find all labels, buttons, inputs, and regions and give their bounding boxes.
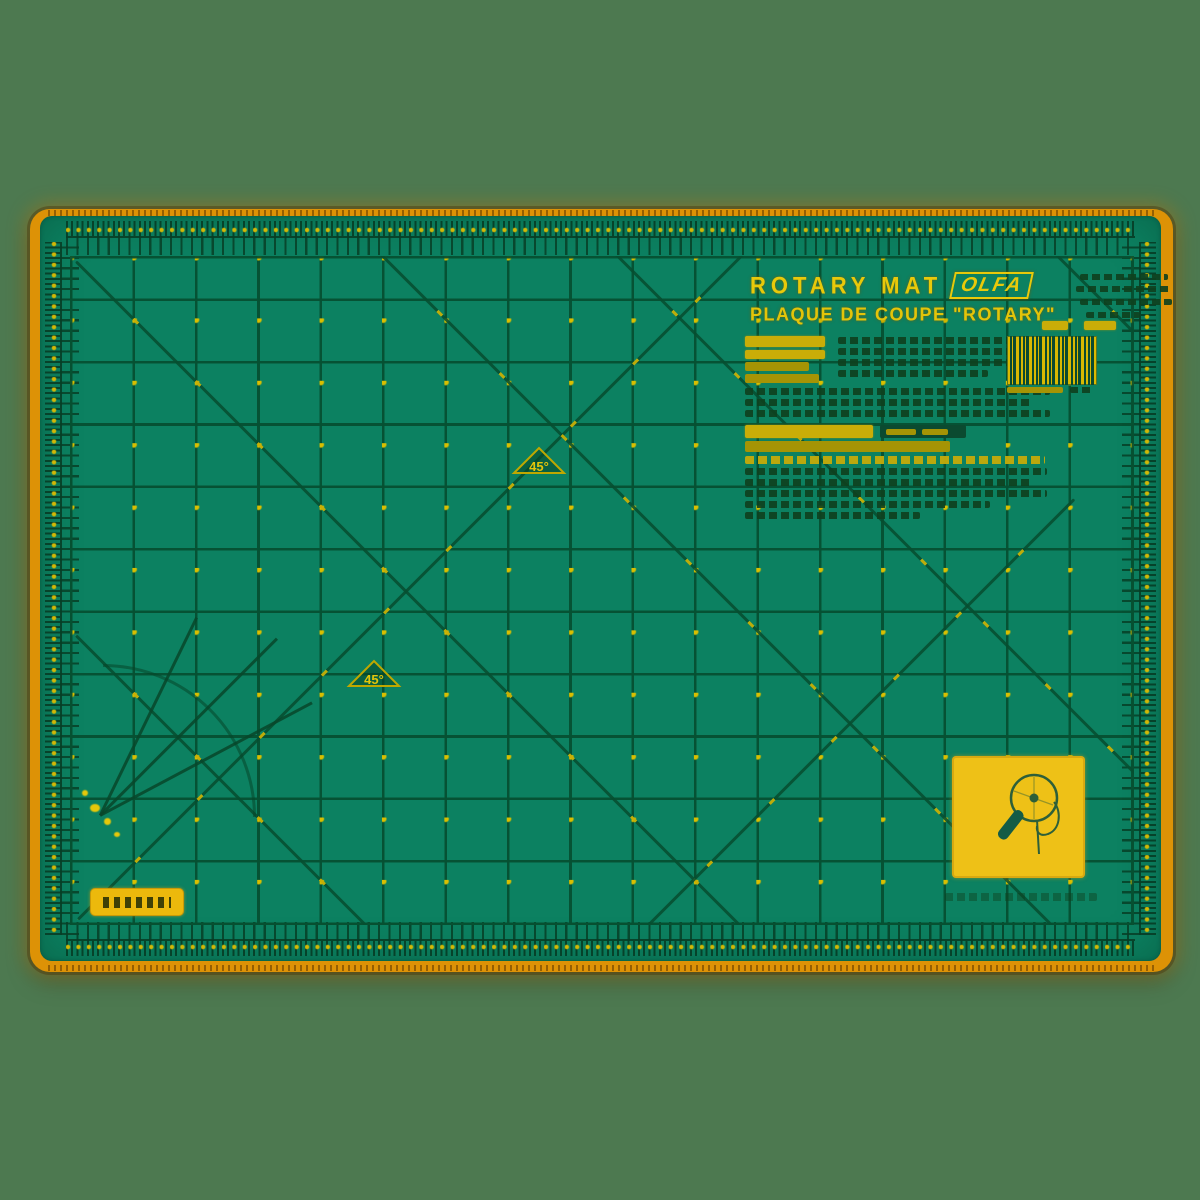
product-photo-background: 45° 45° ROTARY MAT OLFA PLAQUE DE COUPE …: [0, 0, 1200, 1200]
embossed-text: [945, 893, 1097, 901]
illegible-text-line: [1070, 387, 1094, 393]
olfa-logo-text: OLFA: [959, 274, 1025, 297]
angle-45-label: 45°: [364, 672, 384, 687]
product-label: [952, 756, 1085, 878]
illegible-text-line: [745, 479, 1033, 486]
illegible-gold-mark: [1084, 321, 1116, 330]
rotary-cutter-icon: [990, 768, 1070, 864]
illegible-text-line: [1076, 286, 1172, 292]
mat-title: ROTARY MAT: [750, 271, 942, 299]
angle-45-marker: 45°: [345, 654, 403, 690]
olfa-logo: OLFA: [949, 272, 1034, 299]
mat-surface: 45° 45° ROTARY MAT OLFA PLAQUE DE COUPE …: [40, 216, 1161, 961]
illegible-text-line: [745, 501, 990, 508]
barcode: [1007, 336, 1097, 385]
illegible-gold-text: [745, 374, 819, 383]
angle-guide-arc: [70, 664, 256, 925]
ruler-bottom: [66, 922, 1135, 956]
illegible-text-line: [745, 410, 1050, 417]
illegible-text-line: [745, 388, 1050, 395]
cutting-mat: 45° 45° ROTARY MAT OLFA PLAQUE DE COUPE …: [30, 209, 1173, 972]
illegible-gold-mark: [1042, 321, 1068, 330]
illegible-gold-headline: [745, 441, 950, 452]
wear-mark: [114, 832, 120, 837]
corner-badge: [90, 888, 184, 916]
wear-mark: [82, 790, 88, 796]
illegible-text-line: [838, 370, 988, 377]
illegible-text-line: [1080, 299, 1172, 305]
mat-header: ROTARY MAT OLFA: [750, 272, 1032, 299]
illegible-text-line: [745, 399, 1033, 406]
wear-mark: [104, 818, 111, 825]
illegible-gold-text: [745, 456, 1045, 464]
mat-subtitle: PLAQUE DE COUPE "ROTARY": [750, 303, 1056, 325]
illegible-gold-text: [745, 350, 825, 359]
angle-45-marker: 45°: [510, 441, 568, 477]
wear-mark: [90, 804, 100, 812]
ruler-top: [66, 221, 1135, 255]
illegible-text-line: [1080, 274, 1168, 280]
illegible-text-line: [745, 512, 920, 519]
barcode-digits: [1007, 387, 1063, 393]
illegible-gold-mark: [922, 429, 948, 435]
illegible-gold-text: [745, 336, 825, 347]
illegible-gold-headline: [745, 425, 873, 438]
illegible-text-line: [1086, 312, 1140, 318]
illegible-gold-mark: [886, 429, 916, 435]
angle-45-label: 45°: [529, 459, 549, 474]
illegible-gold-text: [745, 362, 809, 371]
illegible-text-line: [745, 490, 1047, 497]
diagonal-line: [77, 256, 751, 921]
illegible-text-line: [745, 468, 1047, 475]
diagonal-line: [75, 260, 784, 925]
